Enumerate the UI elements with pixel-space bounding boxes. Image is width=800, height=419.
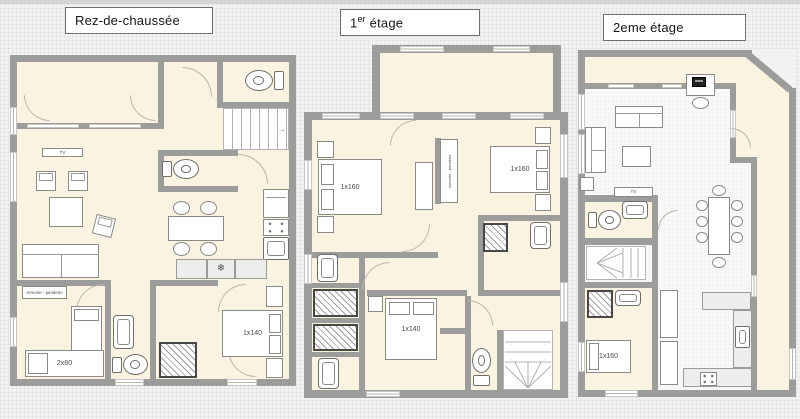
toilet-icon (587, 207, 623, 233)
snowflake-icon: ❄ (208, 260, 234, 278)
sofa-icon (585, 127, 606, 173)
sink-icon (318, 358, 339, 389)
bed-size-label: 1x140 (386, 299, 436, 359)
window (304, 254, 312, 284)
plan-ground-floor: → TV (10, 55, 296, 386)
kitchen-sink-icon (263, 237, 289, 260)
window (578, 134, 585, 174)
stairs-arrow-icon: → (278, 125, 286, 134)
wall (304, 390, 568, 398)
bed: 1x160 (318, 159, 382, 215)
tv-cabinet: TV (614, 187, 653, 197)
nightstand (535, 194, 551, 211)
window (366, 391, 400, 397)
wall (158, 62, 164, 123)
kitchen-sink-icon (735, 326, 750, 348)
nightstand (535, 127, 551, 144)
plan-second-floor: 1x160 TV (578, 50, 796, 397)
plan-first-floor: 1x160 Armoire - penderie 1x160 1x140 (304, 42, 568, 398)
window (89, 124, 141, 128)
bed-size-label: 2x80 (26, 351, 103, 376)
wall (497, 330, 503, 390)
wall (578, 50, 752, 57)
wall (585, 238, 652, 245)
window (27, 124, 79, 128)
terrace (585, 57, 750, 83)
window (322, 113, 360, 119)
title-second-floor: 2eme étage (603, 14, 746, 41)
computer-icon (692, 77, 706, 87)
chair-icon (692, 97, 709, 109)
chair-icon (731, 232, 743, 243)
freezer-icon: ❄ (207, 259, 235, 279)
top-divider (0, 0, 800, 4)
wall (483, 215, 560, 221)
kitchen-counter (176, 259, 207, 279)
armoire-label: Armoire - penderie (33, 289, 57, 295)
chair-icon (731, 200, 743, 211)
title-first-floor: 1er étage (340, 9, 480, 36)
chair-icon (173, 201, 190, 215)
wall (478, 290, 560, 296)
window (578, 94, 585, 130)
wall (312, 283, 359, 288)
bed: 2x80 (25, 350, 104, 377)
wall (789, 88, 796, 390)
window (304, 160, 312, 190)
wardrobe (415, 162, 433, 210)
chair-icon (696, 200, 708, 211)
shower-icon (313, 289, 358, 317)
nightstand (368, 296, 383, 312)
nightstand (317, 216, 334, 233)
armchair-icon (36, 171, 56, 191)
window (227, 379, 257, 386)
stove-icon (700, 372, 717, 386)
window (10, 317, 17, 347)
bed: 1x160 (490, 146, 550, 193)
armoire-label: Armoire - penderie (441, 140, 457, 202)
title-second-floor-text: 2eme étage (613, 20, 684, 35)
wall (10, 55, 296, 62)
wall (150, 280, 156, 379)
title-ground-floor: Rez-de-chaussée (65, 7, 213, 34)
wardrobe: Armoire - penderie (440, 139, 458, 203)
window (608, 84, 634, 88)
wall (359, 252, 365, 390)
dining-table (708, 197, 730, 255)
kitchen-counter (683, 368, 752, 387)
window (789, 348, 796, 380)
window (115, 379, 144, 386)
sink-icon (113, 315, 134, 349)
dining-table (168, 216, 224, 241)
sink-icon (615, 290, 641, 306)
wardrobe (660, 341, 678, 385)
chair-icon (712, 185, 726, 196)
side-table (580, 177, 594, 191)
chair-icon (200, 242, 217, 256)
chair-icon (731, 216, 743, 227)
room (380, 53, 553, 120)
wardrobe (660, 290, 678, 338)
fridge-icon (263, 189, 289, 218)
kitchen-counter (702, 292, 751, 310)
sink-icon (622, 201, 648, 219)
bed (71, 306, 102, 353)
coffee-table (49, 197, 83, 227)
bed-size-label: 1x160 (319, 160, 381, 214)
window (560, 134, 568, 178)
chair-icon (173, 242, 190, 256)
nightstand (317, 141, 334, 158)
wall (312, 352, 359, 357)
terrace (757, 163, 789, 390)
title-ground-floor-text: Rez-de-chaussée (75, 13, 180, 28)
wall (553, 45, 561, 120)
toilet-icon (470, 346, 494, 388)
window (605, 390, 638, 397)
sink-icon (530, 222, 551, 249)
chair-icon (696, 216, 708, 227)
floorplan-canvas: Rez-de-chaussée 1er étage 2eme étage → (0, 0, 800, 419)
window (510, 113, 544, 119)
bed-size-label: 1x160 (491, 147, 549, 192)
bed: 1x140 (385, 298, 437, 360)
toilet-icon (110, 351, 150, 378)
wall (372, 45, 380, 120)
chair-icon (712, 257, 726, 268)
window (493, 46, 530, 52)
chair-icon (696, 232, 708, 243)
wardrobe (266, 286, 283, 307)
window (751, 275, 757, 297)
shower-icon (159, 342, 197, 378)
armchair-icon (68, 171, 88, 191)
stairs (586, 246, 646, 280)
wardrobe: Armoire - penderie (22, 286, 67, 299)
window (662, 84, 682, 88)
bed: 1x140 (222, 310, 283, 357)
wall (440, 328, 471, 334)
bed-size-label: 1x140 (223, 311, 282, 356)
bed-size-label: 1x160 (587, 341, 630, 372)
wall (217, 102, 289, 108)
tv-cabinet: TV (42, 148, 83, 157)
title-first-floor-text: 1er étage (350, 15, 403, 30)
shower-icon (313, 324, 358, 351)
window (442, 113, 476, 119)
wall (156, 280, 218, 286)
bed: 1x160 (586, 340, 631, 373)
stove-icon (263, 219, 289, 236)
toilet-icon (160, 156, 202, 182)
tv-label: TV (52, 151, 73, 155)
stairs (503, 330, 553, 390)
shower-icon (587, 290, 613, 318)
toilet-icon (240, 67, 286, 95)
window (10, 152, 17, 202)
wall (158, 186, 238, 192)
sofa-icon (615, 106, 663, 128)
stairs: → (223, 108, 289, 150)
window (10, 107, 17, 135)
wall (312, 318, 359, 323)
tv-label: TV (623, 190, 643, 194)
sink-icon (317, 254, 338, 282)
sofa-icon (22, 244, 99, 278)
chair-icon (200, 201, 217, 215)
window (578, 342, 585, 372)
kitchen-counter (235, 259, 267, 279)
wall (652, 195, 658, 390)
window (380, 113, 414, 119)
window (560, 282, 568, 322)
coffee-table (622, 146, 651, 167)
window (400, 46, 444, 52)
wardrobe (266, 358, 283, 378)
wall (289, 55, 296, 386)
shower-icon (483, 223, 508, 252)
